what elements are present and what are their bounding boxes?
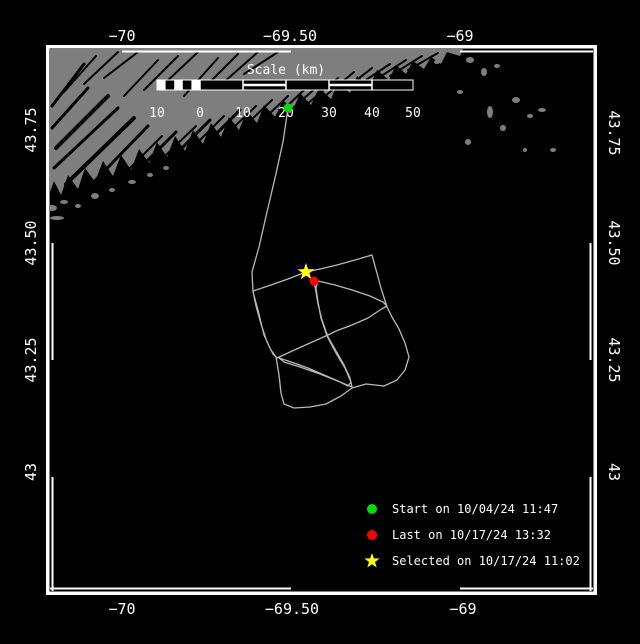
legend-label-last: Last on 10/17/24 13:32 xyxy=(392,528,551,542)
scale-bar-label: 50 xyxy=(405,106,421,121)
frame-inner-right xyxy=(590,477,592,591)
last-marker-icon xyxy=(367,530,377,540)
frame-inner-bottom xyxy=(460,588,593,590)
frame-inner-bottom xyxy=(50,588,291,590)
scale-bar-label: 0 xyxy=(196,106,204,121)
island xyxy=(163,166,169,170)
island xyxy=(91,193,99,199)
scale-bar-label: 40 xyxy=(364,106,380,121)
scale-bar-subcell xyxy=(157,80,166,90)
frame-right xyxy=(594,45,598,595)
frame-inner-top xyxy=(122,51,291,53)
axis-label-left: 43.25 xyxy=(22,337,40,382)
axis-label-left: 43.75 xyxy=(22,107,40,152)
island xyxy=(481,68,487,76)
frame-inner-top xyxy=(460,51,593,53)
axis-label-top: −70 xyxy=(108,27,135,45)
axis-label-top: −69 xyxy=(446,27,473,45)
island xyxy=(466,57,474,63)
track-map-window: Scale (km)1001020304050−70−69.50−69−70−6… xyxy=(0,0,640,640)
axis-label-bottom: −69 xyxy=(449,600,476,618)
frame-inner-left xyxy=(52,243,54,360)
scale-bar-title: Scale (km) xyxy=(247,63,325,78)
legend-label-start: Start on 10/04/24 11:47 xyxy=(392,502,558,516)
axis-label-bottom: −70 xyxy=(108,600,135,618)
island xyxy=(550,148,556,152)
scale-bar-subcell xyxy=(174,80,183,90)
frame-left xyxy=(46,45,50,595)
island xyxy=(60,200,68,204)
legend: Start on 10/04/24 11:47Last on 10/17/24 … xyxy=(364,502,579,568)
island xyxy=(500,125,506,131)
island xyxy=(128,180,136,184)
frame-bottom xyxy=(46,592,597,596)
axis-label-bottom: −69.50 xyxy=(265,600,319,618)
scale-bar-label: 10 xyxy=(235,106,251,121)
frame-inner-left xyxy=(52,477,54,591)
island xyxy=(109,188,115,192)
island xyxy=(147,173,153,177)
island xyxy=(50,216,64,220)
track-map-canvas[interactable]: Scale (km)1001020304050−70−69.50−69−70−6… xyxy=(0,0,640,640)
island xyxy=(523,148,527,152)
island xyxy=(75,204,81,208)
frame-top xyxy=(46,45,597,49)
axis-label-right: 43.50 xyxy=(605,220,623,265)
island xyxy=(487,106,493,118)
island xyxy=(494,64,500,68)
axis-label-left: 43 xyxy=(22,463,40,481)
legend-label-selected: Selected on 10/17/24 11:02 xyxy=(392,554,580,568)
island xyxy=(538,108,546,112)
island xyxy=(527,114,533,118)
last-point-marker[interactable] xyxy=(310,277,319,286)
frame-inner-right xyxy=(590,243,592,360)
island xyxy=(512,97,520,103)
axis-label-right: 43 xyxy=(605,463,623,481)
axis-label-top: −69.50 xyxy=(263,27,317,45)
axis-label-right: 43.25 xyxy=(605,337,623,382)
start-marker-icon xyxy=(367,504,377,514)
scale-bar-label: 30 xyxy=(321,106,337,121)
island xyxy=(434,60,440,64)
axis-label-right: 43.75 xyxy=(605,110,623,155)
scale-bar-subcell xyxy=(191,80,200,90)
axis-label-left: 43.50 xyxy=(22,220,40,265)
island xyxy=(465,139,471,145)
start-point-marker[interactable] xyxy=(284,104,293,113)
scale-bar-label: 10 xyxy=(149,106,165,121)
island xyxy=(457,90,463,94)
